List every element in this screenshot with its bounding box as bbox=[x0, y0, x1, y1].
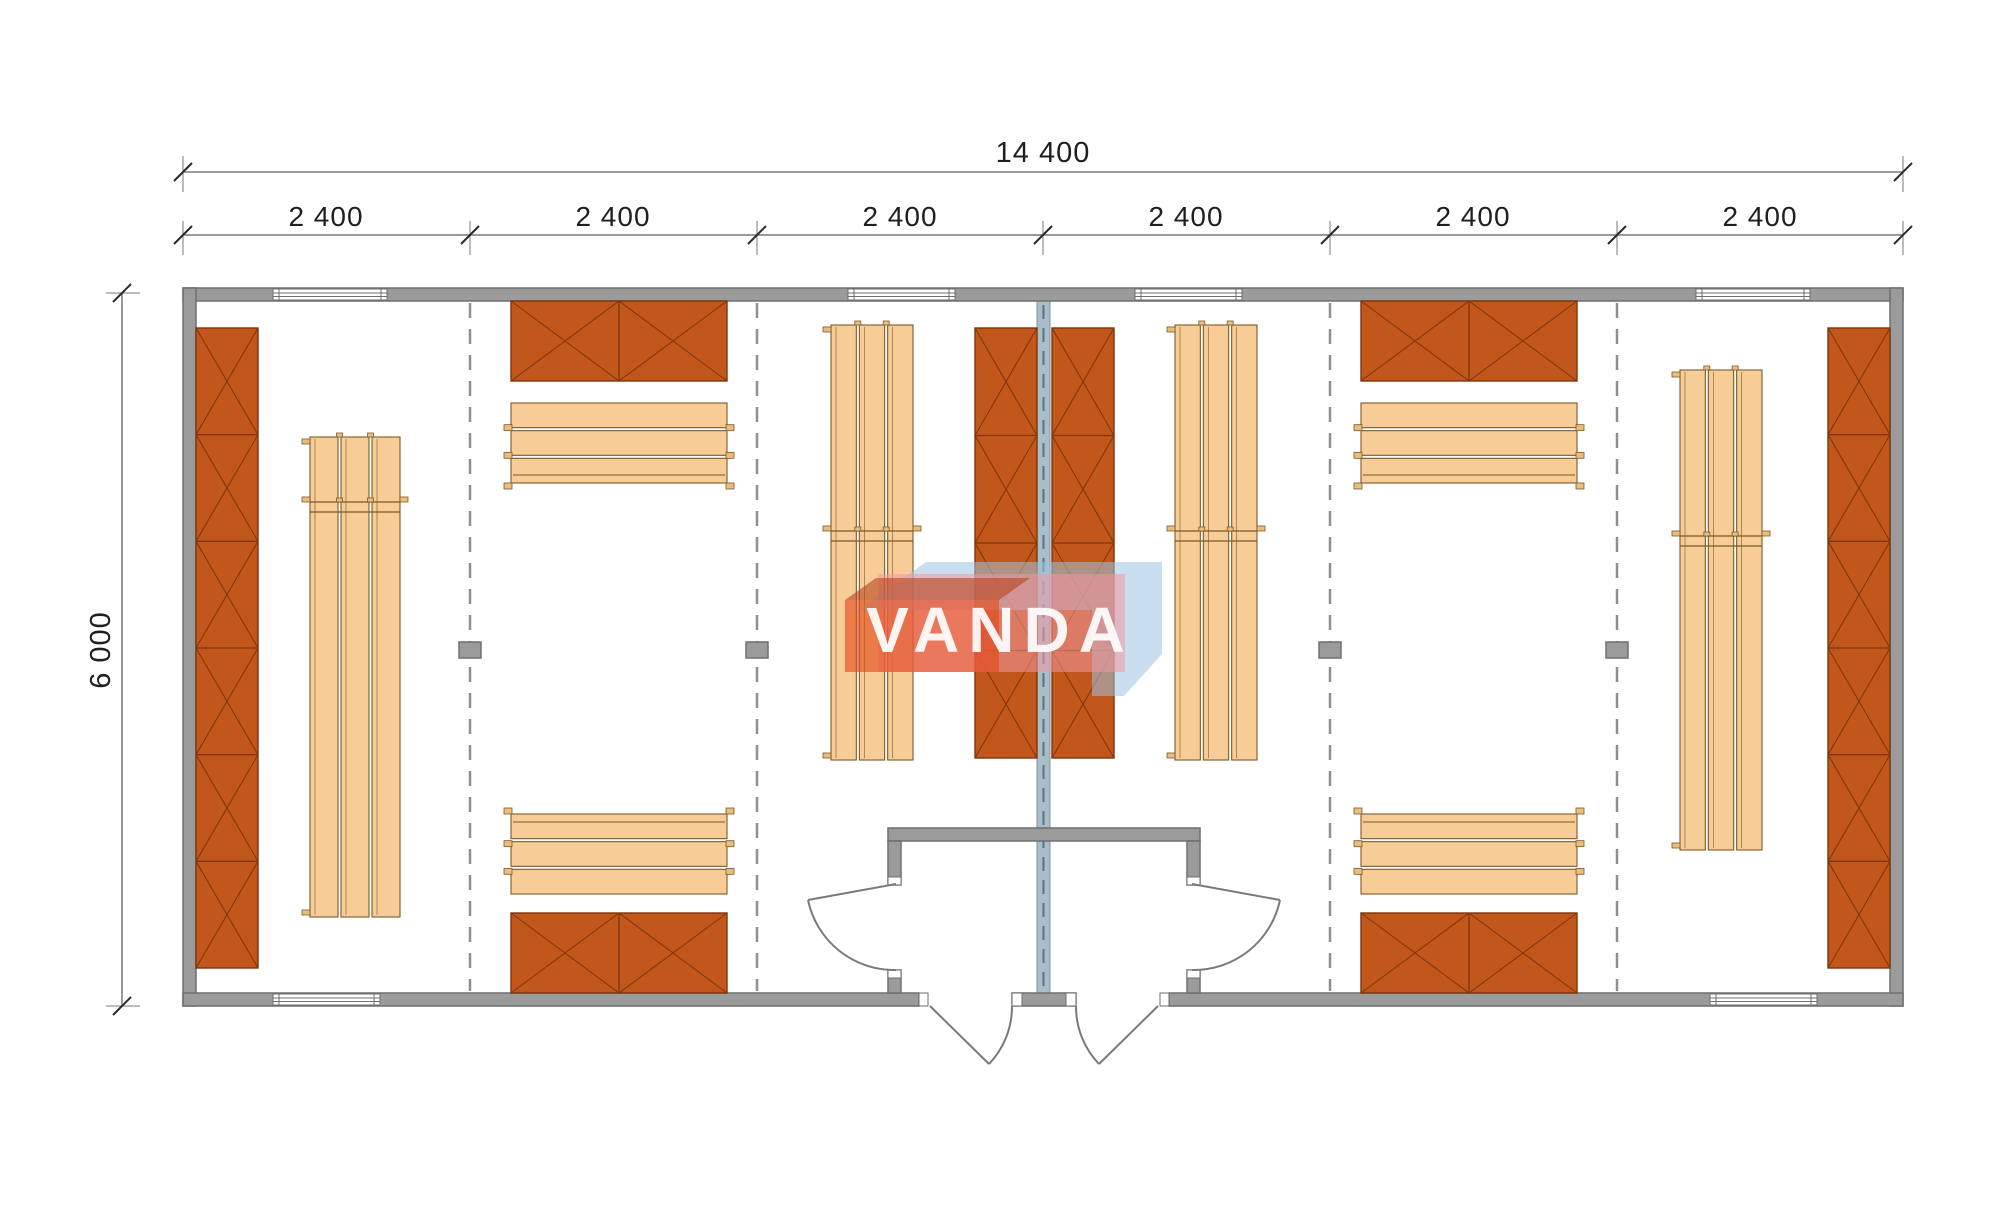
post bbox=[746, 642, 768, 658]
wall-left bbox=[183, 288, 196, 1006]
door-outer-right bbox=[1076, 1006, 1158, 1064]
height-label: 6 000 bbox=[85, 611, 117, 689]
window-top-4 bbox=[1696, 289, 1810, 300]
door-inner-left bbox=[808, 884, 896, 970]
door-jamb bbox=[1012, 993, 1022, 1006]
bench-bottom-module-5 bbox=[1354, 808, 1584, 894]
window-bottom-2 bbox=[1710, 994, 1817, 1005]
door-jamb bbox=[1160, 993, 1169, 1006]
post bbox=[1606, 642, 1628, 658]
bench-top-module-2 bbox=[504, 403, 734, 489]
module-width-label: 2 400 bbox=[575, 201, 650, 232]
wall-right bbox=[1890, 288, 1903, 1006]
window-top-1 bbox=[273, 289, 387, 300]
center-panel-left bbox=[975, 328, 1037, 758]
watermark-text: VANDA bbox=[866, 594, 1134, 666]
plank-stack-module-4 bbox=[1167, 321, 1265, 760]
door-jamb bbox=[919, 993, 928, 1006]
module-width-label: 2 400 bbox=[288, 201, 363, 232]
bottom-shelf-module-5 bbox=[1361, 913, 1577, 993]
wall-panel-right bbox=[1828, 328, 1890, 968]
door-outer-left bbox=[930, 1006, 1012, 1064]
dimension-modules: 2 400 2 400 2 400 2 400 2 400 2 400 bbox=[174, 201, 1912, 255]
module-width-label: 2 400 bbox=[1148, 201, 1223, 232]
wall-top bbox=[183, 288, 1903, 301]
dimension-total-width: 14 400 bbox=[174, 137, 1912, 192]
bench-top-module-5 bbox=[1354, 403, 1584, 489]
module-width-label: 2 400 bbox=[862, 201, 937, 232]
window-bottom-1 bbox=[273, 994, 380, 1005]
door-inner-right bbox=[1192, 884, 1280, 970]
door-jamb bbox=[1066, 993, 1076, 1006]
post bbox=[1319, 642, 1341, 658]
plank-stack-module-1 bbox=[302, 433, 408, 917]
module-width-label: 2 400 bbox=[1722, 201, 1797, 232]
window-top-3 bbox=[1135, 289, 1242, 300]
top-shelf-module-5 bbox=[1361, 301, 1577, 381]
wall-panel-left bbox=[196, 328, 258, 968]
dimension-height: 6 000 bbox=[85, 284, 140, 1015]
plank-stack-module-3 bbox=[823, 321, 921, 760]
floor-plan-page: 14 400 2 bbox=[0, 0, 2000, 1226]
module-width-label: 2 400 bbox=[1435, 201, 1510, 232]
post bbox=[459, 642, 481, 658]
door-jamb bbox=[1187, 970, 1200, 978]
window-top-2 bbox=[848, 289, 955, 300]
plank-stack-module-6 bbox=[1672, 366, 1770, 850]
floor-plan-drawing: 14 400 2 bbox=[0, 0, 2000, 1226]
bottom-shelf-module-2 bbox=[511, 913, 727, 993]
door-jamb bbox=[888, 970, 901, 978]
vestibule-top-wall bbox=[888, 828, 1200, 841]
total-width-label: 14 400 bbox=[996, 137, 1091, 169]
bench-bottom-module-2 bbox=[504, 808, 734, 894]
top-shelf-module-2 bbox=[511, 301, 727, 381]
